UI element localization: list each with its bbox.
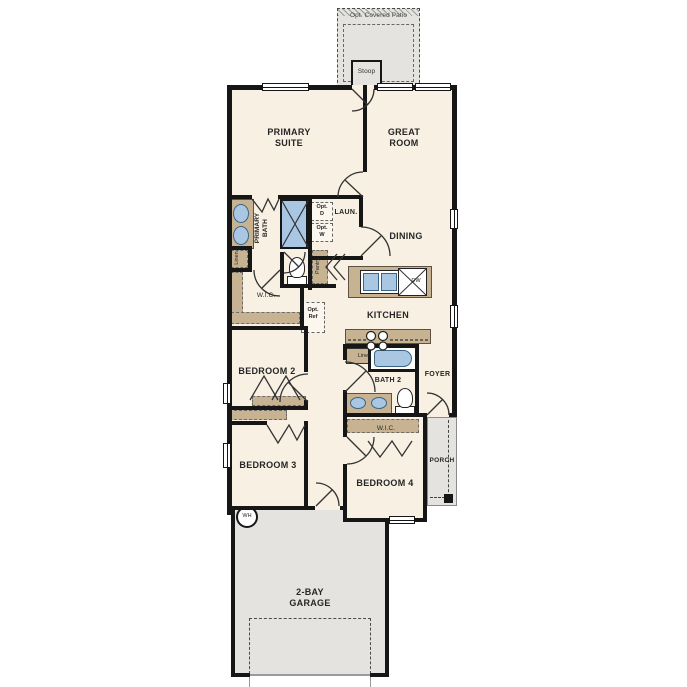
wall-bed4-left-upper	[343, 413, 347, 437]
label-bedroom4: BEDROOM 4	[345, 478, 425, 489]
label-primary-bath: PRIMARY BATH	[254, 200, 278, 256]
driveway-edge-left	[249, 677, 250, 687]
label-opt-ref: Opt. Ref	[301, 307, 325, 320]
wall-wic-bottom	[227, 326, 308, 330]
porch-column	[444, 494, 453, 503]
label-bedroom2: BEDROOM 2	[227, 366, 307, 377]
label-opt-washer: Opt. W	[311, 225, 333, 238]
wall-bath2-top	[343, 344, 419, 348]
garage-door-outline	[249, 618, 371, 674]
kitchen-sink-basin-2	[381, 273, 397, 291]
label-laundry: LAUN.	[330, 209, 362, 217]
primary-sink-1	[233, 204, 249, 223]
bath2-sink-2	[371, 397, 387, 409]
window-dining	[450, 209, 458, 229]
bath2-toilet-bowl	[397, 388, 413, 408]
wall-primary-bottom-right	[278, 195, 363, 199]
hall-floor	[304, 326, 343, 510]
porch-dashed-bottom	[430, 497, 445, 498]
wall-primary-great-divider	[363, 85, 367, 172]
wall-bed2-bottom	[227, 406, 308, 410]
wall-garage-bottom-left	[231, 673, 250, 677]
window-kitchen	[450, 305, 458, 328]
bath2-sink-1	[350, 397, 366, 409]
label-great-room: GREAT ROOM	[376, 127, 432, 149]
label-primary-suite: PRIMARY SUITE	[257, 127, 321, 149]
window-bedroom4	[389, 516, 415, 524]
label-garage: 2-BAY GARAGE	[280, 587, 340, 609]
wall-frontdoor-jamb	[449, 413, 457, 417]
label-linen-bath2: Linen	[346, 353, 383, 360]
window-bedroom2	[223, 383, 231, 404]
floor-plan: Opt. Covered Patio Stoop PRIMARY SUITE G…	[0, 0, 687, 687]
label-wic-primary: W.I.C.	[240, 292, 292, 300]
hall-linen-shelf	[229, 410, 287, 420]
wall-primary-bottom-left	[227, 195, 252, 199]
label-bath2: BATH 2	[357, 377, 419, 385]
label-kitchen: KITCHEN	[352, 310, 424, 321]
wic-primary-shelf-bottom	[231, 312, 300, 324]
wall-toilet-niche-left	[280, 252, 284, 288]
label-opt-dryer: Opt. D	[311, 204, 333, 217]
kitchen-sink-basin-1	[363, 273, 379, 291]
wall-bed3-top-left	[227, 421, 267, 425]
wall-bed4-right	[423, 413, 427, 522]
window-great-room-1	[377, 83, 413, 91]
wall-linen-right	[248, 248, 252, 270]
label-linen-primary: Linen	[234, 240, 244, 276]
label-foyer: FOYER	[419, 371, 456, 379]
label-water-heater: WH	[236, 513, 258, 520]
wall-right	[452, 85, 457, 417]
wall-bed4-left-lower	[343, 464, 347, 522]
wall-niche-pantry-bottom	[280, 284, 336, 288]
label-stoop: Stoop	[351, 68, 382, 76]
wall-bath2-left-lower	[343, 390, 347, 413]
wall-garage-left	[231, 506, 235, 677]
wall-garage-top	[231, 506, 315, 510]
wall-garage-top-jamb	[340, 506, 343, 510]
label-covered-patio: Opt. Covered Patio	[340, 12, 417, 20]
garage-door-sill	[250, 674, 370, 676]
label-wic-bed4: W.I.C.	[357, 425, 415, 433]
label-dishwasher: DW	[406, 278, 426, 285]
shower	[280, 199, 308, 249]
window-great-room-2	[415, 83, 451, 91]
kitchen-counter	[345, 329, 431, 344]
label-bedroom3: BEDROOM 3	[228, 460, 308, 471]
label-dining: DINING	[378, 231, 434, 242]
driveway-edge-right	[370, 677, 371, 687]
window-primary-suite	[262, 83, 309, 91]
label-porch: PORCH	[427, 457, 457, 465]
label-pantry: Pantry	[315, 248, 325, 284]
primary-toilet-bowl	[289, 257, 305, 278]
wall-garage-right	[385, 520, 389, 677]
bedroom2-closet-shelf	[252, 396, 306, 406]
